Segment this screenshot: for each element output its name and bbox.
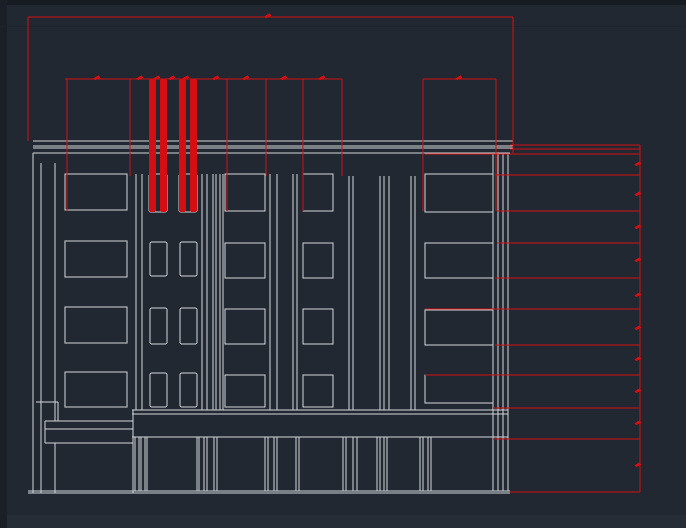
canvas-left-edge bbox=[0, 0, 7, 528]
canvas-bottom-strip bbox=[0, 515, 686, 528]
canvas-top-edge bbox=[0, 0, 686, 5]
cad-drawing-viewport[interactable] bbox=[0, 0, 686, 528]
dimension-extension-bar bbox=[149, 79, 156, 212]
dimension-extension-bar bbox=[190, 79, 197, 212]
building-elevation-drawing bbox=[0, 0, 686, 528]
dimension-extension-bar bbox=[179, 79, 186, 212]
canvas-guide-line bbox=[0, 26, 686, 27]
dimension-extension-bar bbox=[160, 79, 167, 212]
